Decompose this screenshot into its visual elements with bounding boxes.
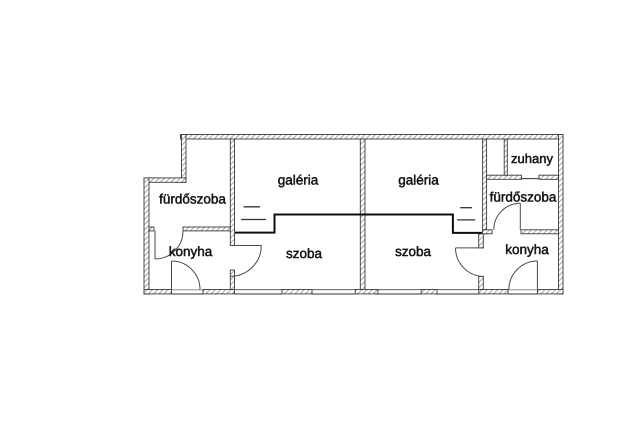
svg-text:konyha: konyha xyxy=(169,244,213,259)
svg-text:galéria: galéria xyxy=(278,173,319,188)
svg-text:fürdőszoba: fürdőszoba xyxy=(159,192,226,207)
svg-text:szoba: szoba xyxy=(395,244,432,259)
svg-text:szoba: szoba xyxy=(286,246,323,261)
svg-text:zuhany: zuhany xyxy=(511,151,553,166)
svg-text:konyha: konyha xyxy=(505,242,549,257)
svg-text:fürdőszoba: fürdőszoba xyxy=(490,189,557,204)
svg-text:galéria: galéria xyxy=(398,173,439,188)
